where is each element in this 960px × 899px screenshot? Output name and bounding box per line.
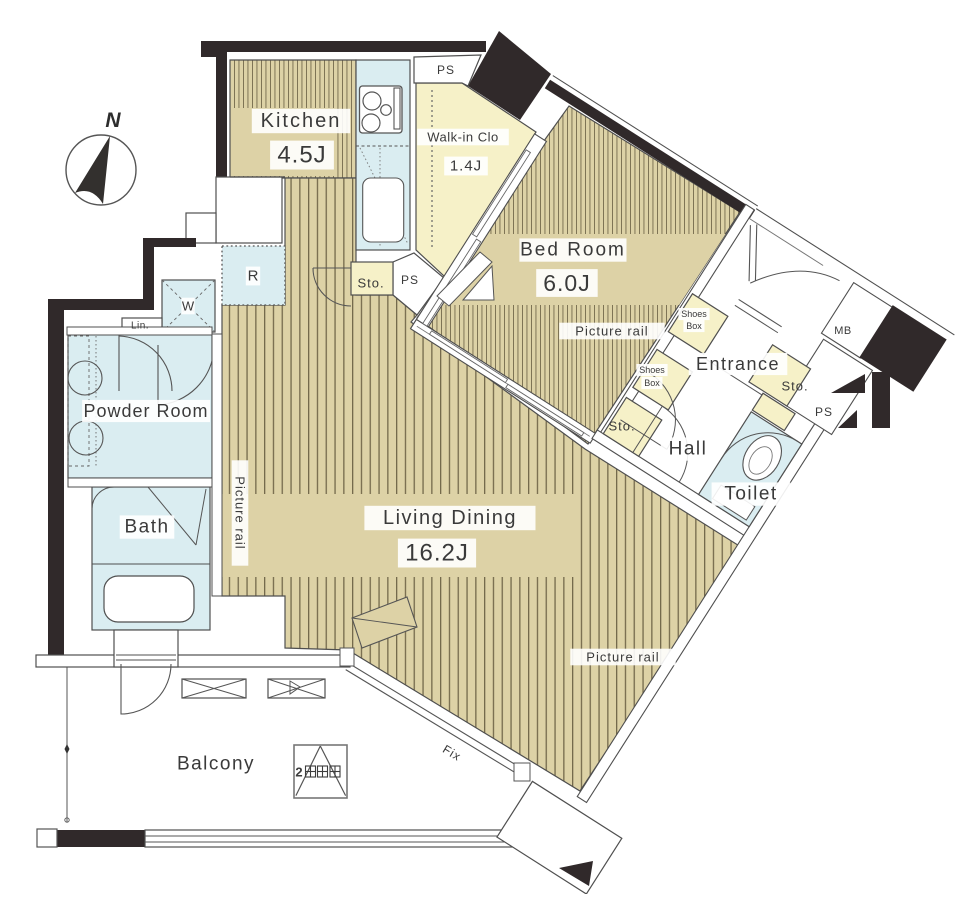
svg-text:Walk-in Clo: Walk-in Clo (427, 130, 498, 145)
svg-text:Toilet: Toilet (724, 484, 777, 505)
svg-text:Picture rail: Picture rail (575, 324, 648, 339)
svg-text:Shoes: Shoes (681, 309, 707, 319)
svg-text:Hall: Hall (669, 439, 708, 460)
svg-text:Bath: Bath (124, 517, 169, 538)
svg-text:PS: PS (437, 63, 455, 77)
svg-text:Box: Box (686, 321, 702, 331)
svg-text:16.2J: 16.2J (405, 540, 469, 567)
svg-text:Balcony: Balcony (177, 754, 255, 775)
svg-text:Lin.: Lin. (131, 321, 149, 332)
svg-text:MB: MB (834, 325, 852, 337)
svg-text:4.5J: 4.5J (277, 142, 326, 169)
svg-text:PS: PS (401, 273, 419, 287)
svg-text:Shoes: Shoes (639, 365, 665, 375)
svg-text:Living Dining: Living Dining (383, 507, 517, 529)
svg-text:2: 2 (295, 765, 302, 780)
svg-text:N: N (105, 109, 121, 132)
svg-text:1.4J: 1.4J (450, 158, 482, 175)
svg-text:Picture rail: Picture rail (233, 476, 248, 549)
svg-text:Entrance: Entrance (696, 354, 780, 374)
svg-text:Bed Room: Bed Room (520, 240, 626, 261)
svg-text:R: R (248, 268, 259, 285)
svg-text:Picture rail: Picture rail (586, 650, 659, 665)
svg-text:Kitchen: Kitchen (261, 110, 342, 132)
svg-text:Powder Room: Powder Room (83, 401, 208, 421)
svg-text:W: W (182, 299, 195, 314)
svg-text:Sto.: Sto. (608, 419, 635, 434)
svg-text:Sto.: Sto. (357, 276, 384, 291)
svg-text:Sto.: Sto. (781, 379, 808, 394)
svg-text:PS: PS (815, 405, 833, 419)
svg-text:6.0J: 6.0J (543, 270, 590, 296)
svg-text:Box: Box (644, 378, 660, 388)
